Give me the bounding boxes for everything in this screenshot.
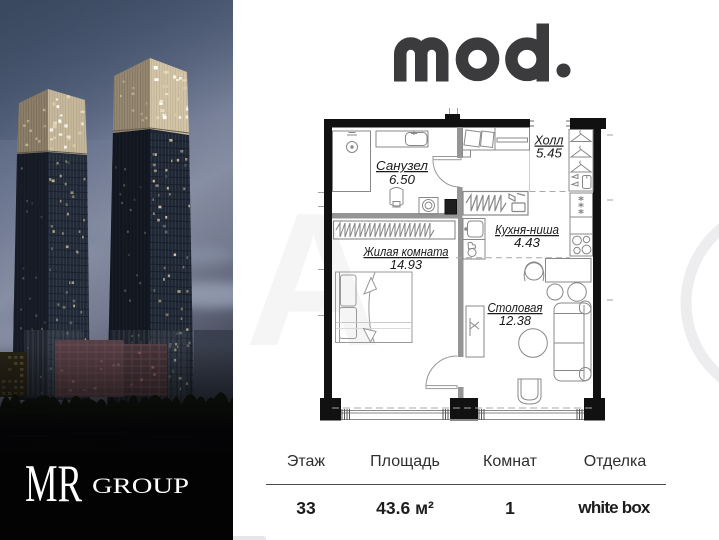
svg-text:А: А [245, 174, 382, 386]
svg-text:6.50: 6.50 [389, 173, 415, 187]
svg-text:Санузел: Санузел [376, 159, 428, 173]
svg-text:5.45: 5.45 [536, 147, 562, 161]
svg-text:Кухня-ниша: Кухня-ниша [495, 223, 559, 237]
svg-text:Холл: Холл [533, 134, 563, 148]
svg-text:12.38: 12.38 [499, 314, 531, 328]
svg-text:4.43: 4.43 [514, 236, 540, 250]
svg-text:MR: MR [25, 455, 82, 513]
svg-text:Столовая: Столовая [488, 301, 543, 315]
svg-text:Жилая комната: Жилая комната [363, 245, 449, 259]
svg-text:14.93: 14.93 [390, 258, 422, 272]
svg-text:GROUP: GROUP [92, 473, 189, 498]
